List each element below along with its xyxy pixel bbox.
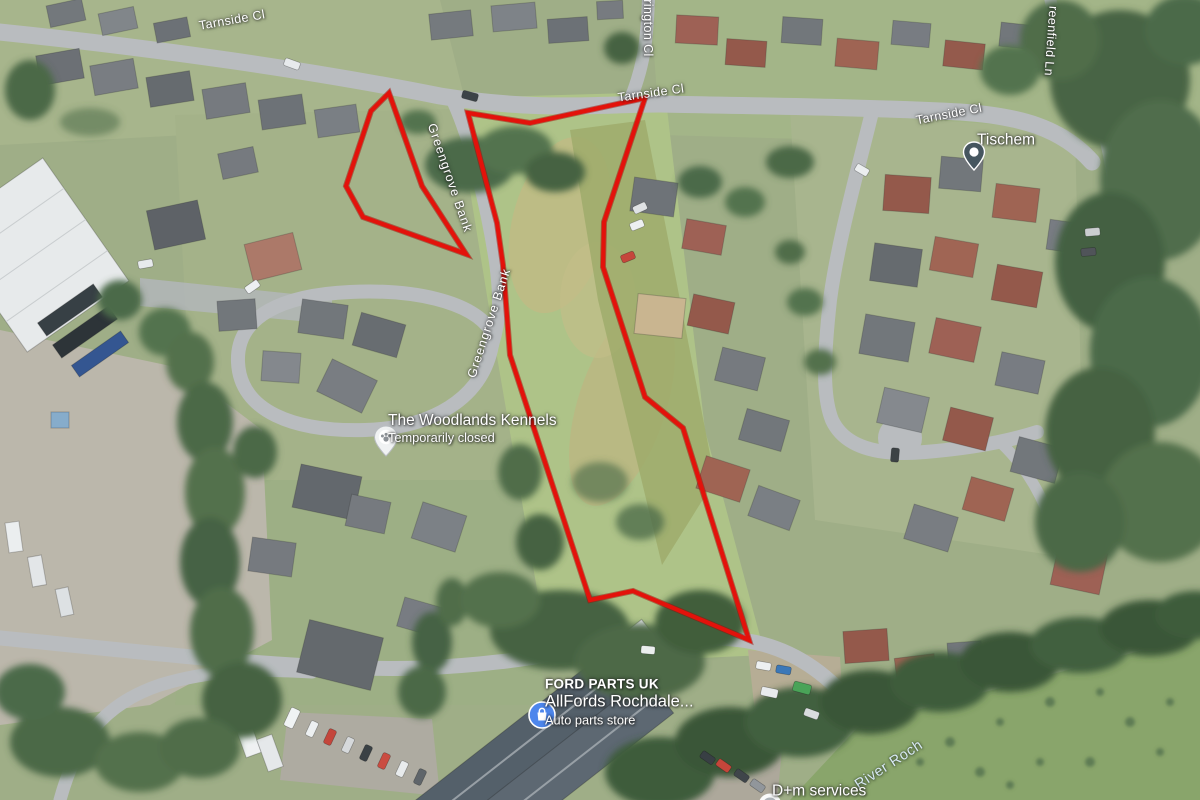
boundary-polygon-main [468, 98, 749, 640]
poi-name[interactable]: AllFords Rochdale... [545, 692, 694, 711]
poi-label-tischem[interactable]: Tischem [977, 131, 1035, 148]
poi-label-dm-services[interactable]: D+m services [772, 782, 866, 799]
poi-brand-line[interactable]: FORD PARTS UK [545, 676, 694, 691]
boundary-polygon-main [468, 98, 749, 640]
poi-ford-parts[interactable]: FORD PARTS UK AllFords Rochdale... Auto … [545, 676, 694, 727]
poi-status: Temporarily closed [388, 431, 557, 446]
poi-name[interactable]: The Woodlands Kennels [388, 412, 557, 429]
poi-woodlands-kennels[interactable]: The Woodlands Kennels Temporarily closed [388, 412, 557, 446]
poi-category: Auto parts store [545, 712, 694, 727]
map-canvas[interactable]: Tarnside Cl Tarnside Cl Tarnside Cl arri… [0, 0, 1200, 800]
